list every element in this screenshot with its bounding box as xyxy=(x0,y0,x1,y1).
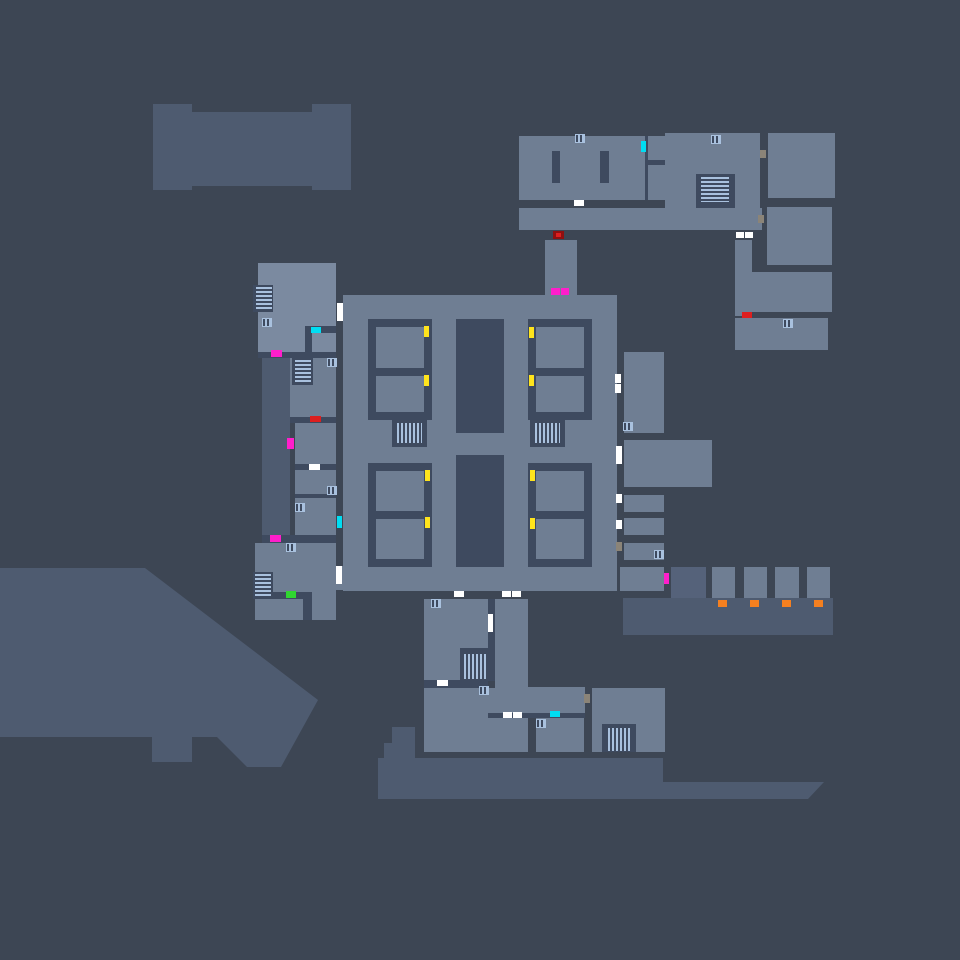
room-tl-2 xyxy=(376,376,424,412)
room-bl-2 xyxy=(376,519,424,559)
door-white xyxy=(745,232,753,238)
south-pier xyxy=(392,727,415,758)
stairs-south-1 xyxy=(464,654,487,679)
window-icon xyxy=(327,358,337,367)
door-tan xyxy=(758,215,764,223)
door-white xyxy=(616,446,622,455)
door-tan xyxy=(616,542,622,551)
ne-room-a-pillar-2 xyxy=(600,151,609,183)
stairs-ne xyxy=(701,177,729,202)
ne-corridor xyxy=(519,208,762,230)
stairs-south-2 xyxy=(608,728,630,751)
door-yellow xyxy=(529,375,534,386)
door-tan xyxy=(584,694,590,703)
door-yellow xyxy=(530,470,535,481)
door-white xyxy=(574,200,584,206)
south-corridor-h xyxy=(528,687,585,713)
room-tr-2 xyxy=(536,376,584,412)
door-white xyxy=(513,712,522,718)
link-corridor-north xyxy=(545,240,577,295)
door-white xyxy=(336,575,342,584)
door-magenta xyxy=(551,288,560,295)
door-red xyxy=(310,416,321,422)
window-icon xyxy=(262,318,272,327)
east-room-1 xyxy=(624,495,664,512)
dock-room-2 xyxy=(744,567,767,598)
door-orange xyxy=(782,600,791,607)
door-magenta xyxy=(664,573,669,584)
dock-anteroom xyxy=(671,567,706,598)
window-icon xyxy=(327,486,337,495)
room-bl-1 xyxy=(376,471,424,511)
door-white xyxy=(616,494,622,503)
window-icon xyxy=(575,134,585,143)
door-cyan xyxy=(550,711,560,717)
door-white xyxy=(488,623,493,632)
west-room-1 xyxy=(295,423,336,464)
room-tl-1 xyxy=(376,327,424,368)
nw-annex-wall-v xyxy=(305,333,312,352)
door-yellow xyxy=(530,518,535,529)
stairs-west xyxy=(295,360,311,383)
stairs-sw xyxy=(255,574,271,597)
door-orange xyxy=(718,600,727,607)
ne-corridor-v xyxy=(735,240,752,316)
window-icon xyxy=(479,686,489,695)
south-walkway-tip xyxy=(808,782,824,799)
ne-room-a-annex1 xyxy=(648,136,665,160)
game-screen: { "meta": {"width": 960, "height": 960, … xyxy=(0,0,960,960)
door-green xyxy=(286,591,296,598)
door-yellow xyxy=(529,327,534,338)
door-white xyxy=(512,591,521,597)
dock-room-3 xyxy=(775,567,799,598)
ne-room-e xyxy=(735,318,828,350)
window-icon xyxy=(654,550,664,559)
window-icon xyxy=(295,503,305,512)
room-br-1 xyxy=(536,471,584,511)
window-icon xyxy=(711,135,721,144)
door-yellow xyxy=(425,517,430,528)
northwest-building-right xyxy=(312,104,351,190)
south-wall-1 xyxy=(488,599,495,681)
room-tr-1 xyxy=(536,327,584,368)
facility-level-map xyxy=(0,0,960,960)
dock-room-4 xyxy=(807,567,830,598)
door-red-center xyxy=(556,233,561,237)
door-white xyxy=(615,374,621,383)
window-icon xyxy=(783,319,793,328)
door-white xyxy=(615,384,621,393)
door-white xyxy=(454,591,464,597)
ne-room-b xyxy=(768,133,835,198)
door-cyan xyxy=(311,327,321,333)
south-pier-step xyxy=(384,743,392,758)
door-white xyxy=(616,455,622,464)
ne-room-a-pillar-1 xyxy=(552,151,560,183)
door-orange xyxy=(814,600,823,607)
stairs-main-left xyxy=(397,423,422,443)
stairs-main-right xyxy=(535,423,560,443)
northwest-building-mid xyxy=(192,112,312,186)
ne-room-a xyxy=(519,136,645,200)
stairs-nw xyxy=(256,287,272,311)
court-south xyxy=(456,455,504,567)
east-room-tall xyxy=(624,352,664,433)
window-icon xyxy=(536,719,546,728)
door-white xyxy=(336,566,342,575)
window-icon xyxy=(286,543,296,552)
door-magenta xyxy=(271,350,282,357)
door-yellow xyxy=(425,470,430,481)
sw-annex-wall-v xyxy=(303,592,312,620)
door-yellow xyxy=(424,326,429,337)
window-icon xyxy=(431,599,441,608)
dock-room-1 xyxy=(712,567,735,598)
door-cyan xyxy=(337,516,342,528)
door-white xyxy=(309,464,320,470)
ne-room-a-annex2 xyxy=(648,165,665,200)
door-tan xyxy=(760,150,766,158)
south-walkway xyxy=(663,782,808,799)
door-cyan xyxy=(641,141,646,152)
east-room-2 xyxy=(624,518,664,535)
door-red xyxy=(742,312,752,318)
ne-room-c xyxy=(767,207,832,265)
door-white xyxy=(736,232,744,238)
northwest-building-left xyxy=(153,104,192,190)
ne-annex-divider xyxy=(648,160,665,165)
door-white xyxy=(503,712,512,718)
east-room-mid xyxy=(624,440,712,487)
door-magenta xyxy=(287,438,294,449)
dock-platform xyxy=(623,598,833,635)
court-north xyxy=(456,319,504,433)
door-white xyxy=(337,303,343,312)
door-white xyxy=(337,312,343,321)
door-orange xyxy=(750,600,759,607)
door-white xyxy=(488,614,493,623)
door-magenta xyxy=(561,288,569,295)
door-white xyxy=(502,591,511,597)
west-alley xyxy=(262,358,290,535)
door-white xyxy=(616,520,622,529)
room-br-2 xyxy=(536,519,584,559)
south-slab xyxy=(378,758,663,799)
door-magenta xyxy=(270,535,281,542)
window-icon xyxy=(623,422,633,431)
door-yellow xyxy=(424,375,429,386)
south-room-3 xyxy=(424,688,528,752)
door-white xyxy=(437,680,448,686)
ne-room-d xyxy=(752,272,832,312)
dock-room-left xyxy=(620,567,664,591)
